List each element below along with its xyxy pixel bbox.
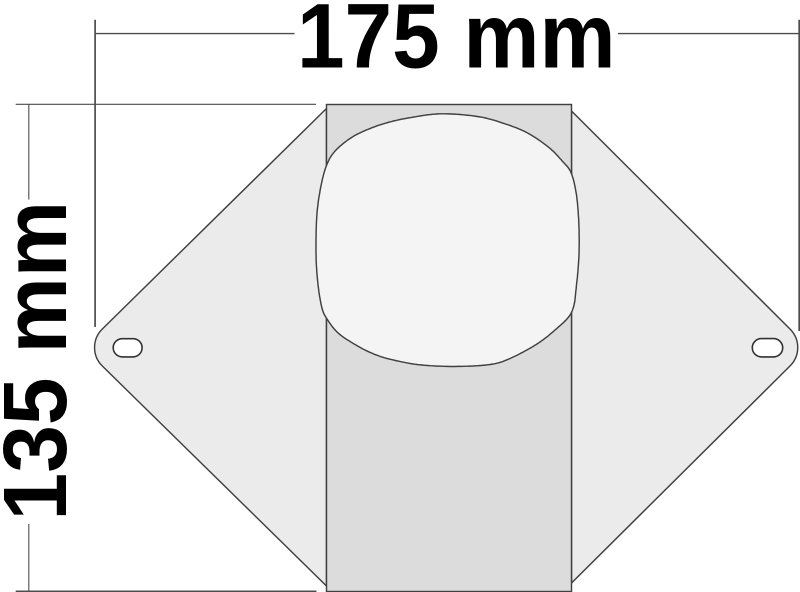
svg-text:175 mm: 175 mm bbox=[297, 0, 616, 87]
svg-text:135 mm: 135 mm bbox=[0, 201, 85, 520]
